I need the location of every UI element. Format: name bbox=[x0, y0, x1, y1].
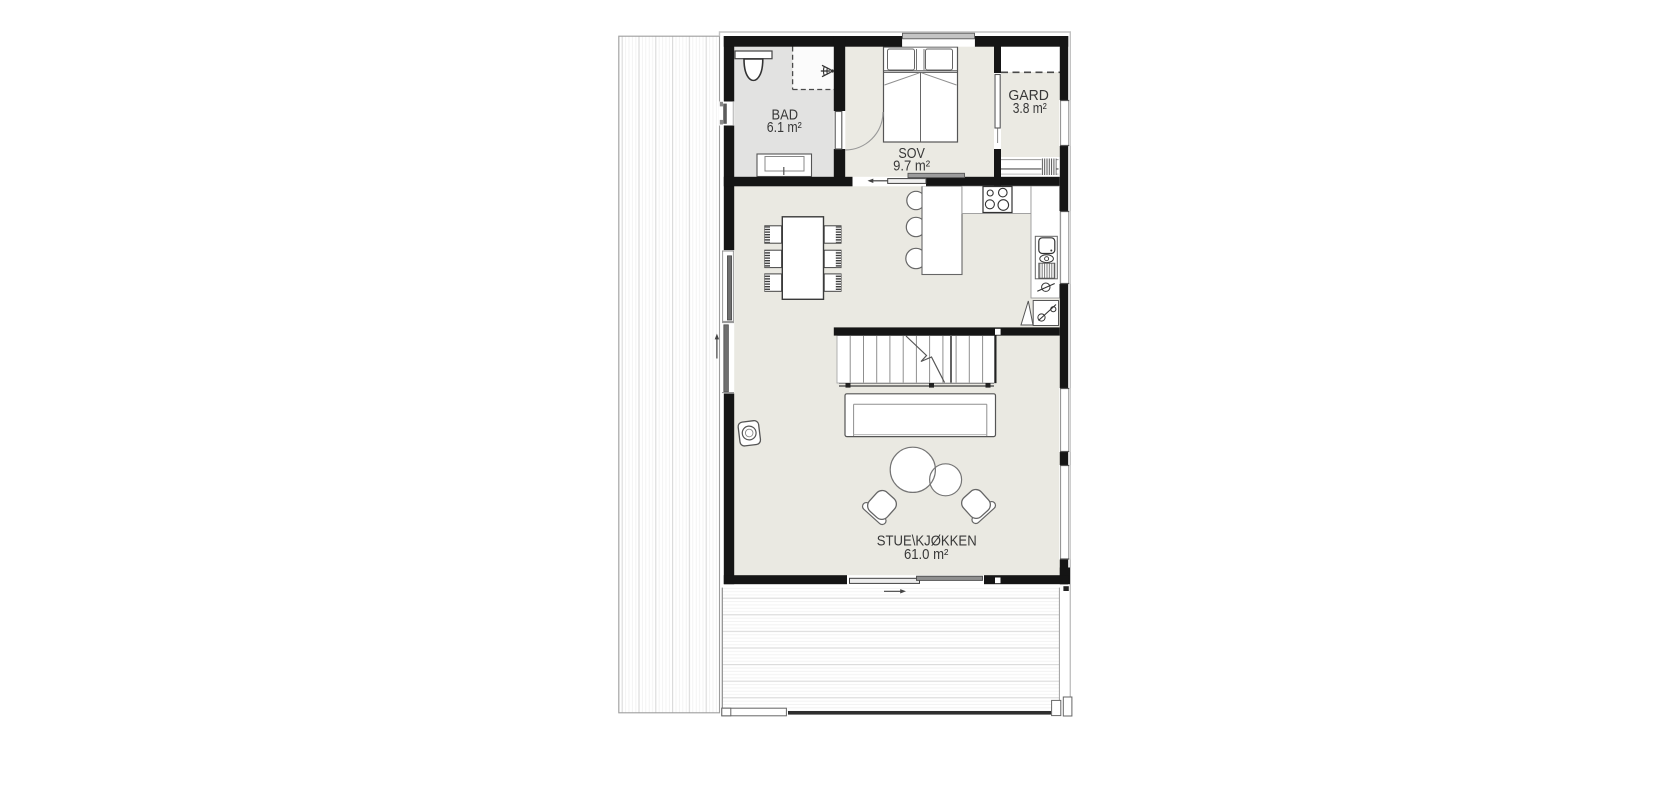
svg-text:6.1 m²: 6.1 m² bbox=[767, 120, 802, 136]
svg-text:61.0 m²: 61.0 m² bbox=[904, 547, 949, 563]
svg-text:3.8 m²: 3.8 m² bbox=[1013, 101, 1047, 117]
svg-text:9.7 m²: 9.7 m² bbox=[893, 158, 930, 174]
